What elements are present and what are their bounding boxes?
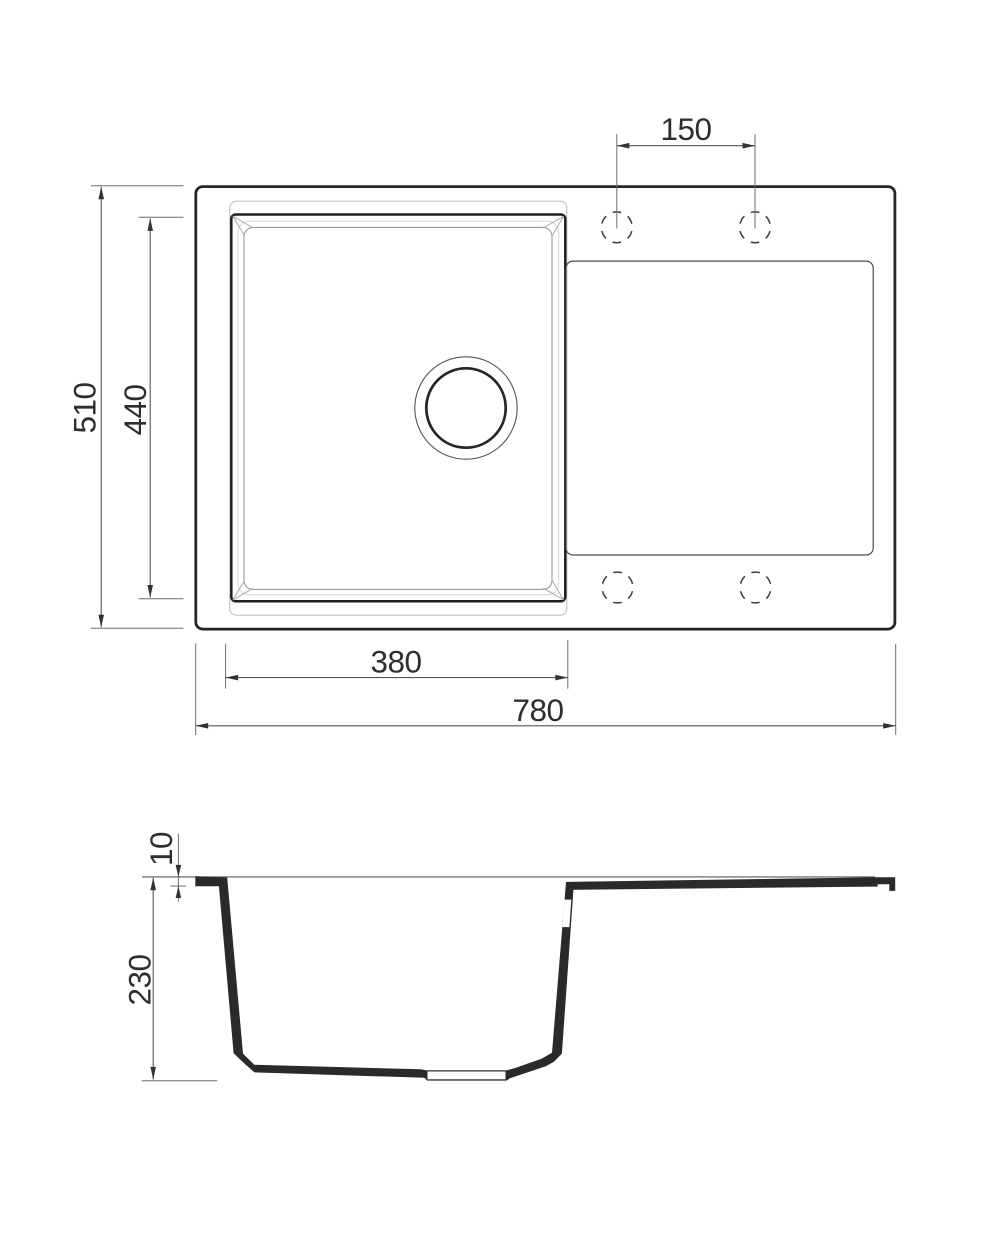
svg-text:780: 780 bbox=[512, 692, 563, 728]
svg-text:10: 10 bbox=[143, 832, 179, 866]
svg-text:380: 380 bbox=[370, 644, 421, 680]
svg-text:510: 510 bbox=[67, 382, 103, 433]
svg-text:230: 230 bbox=[122, 954, 158, 1005]
svg-text:440: 440 bbox=[117, 384, 153, 435]
svg-text:150: 150 bbox=[660, 111, 711, 147]
